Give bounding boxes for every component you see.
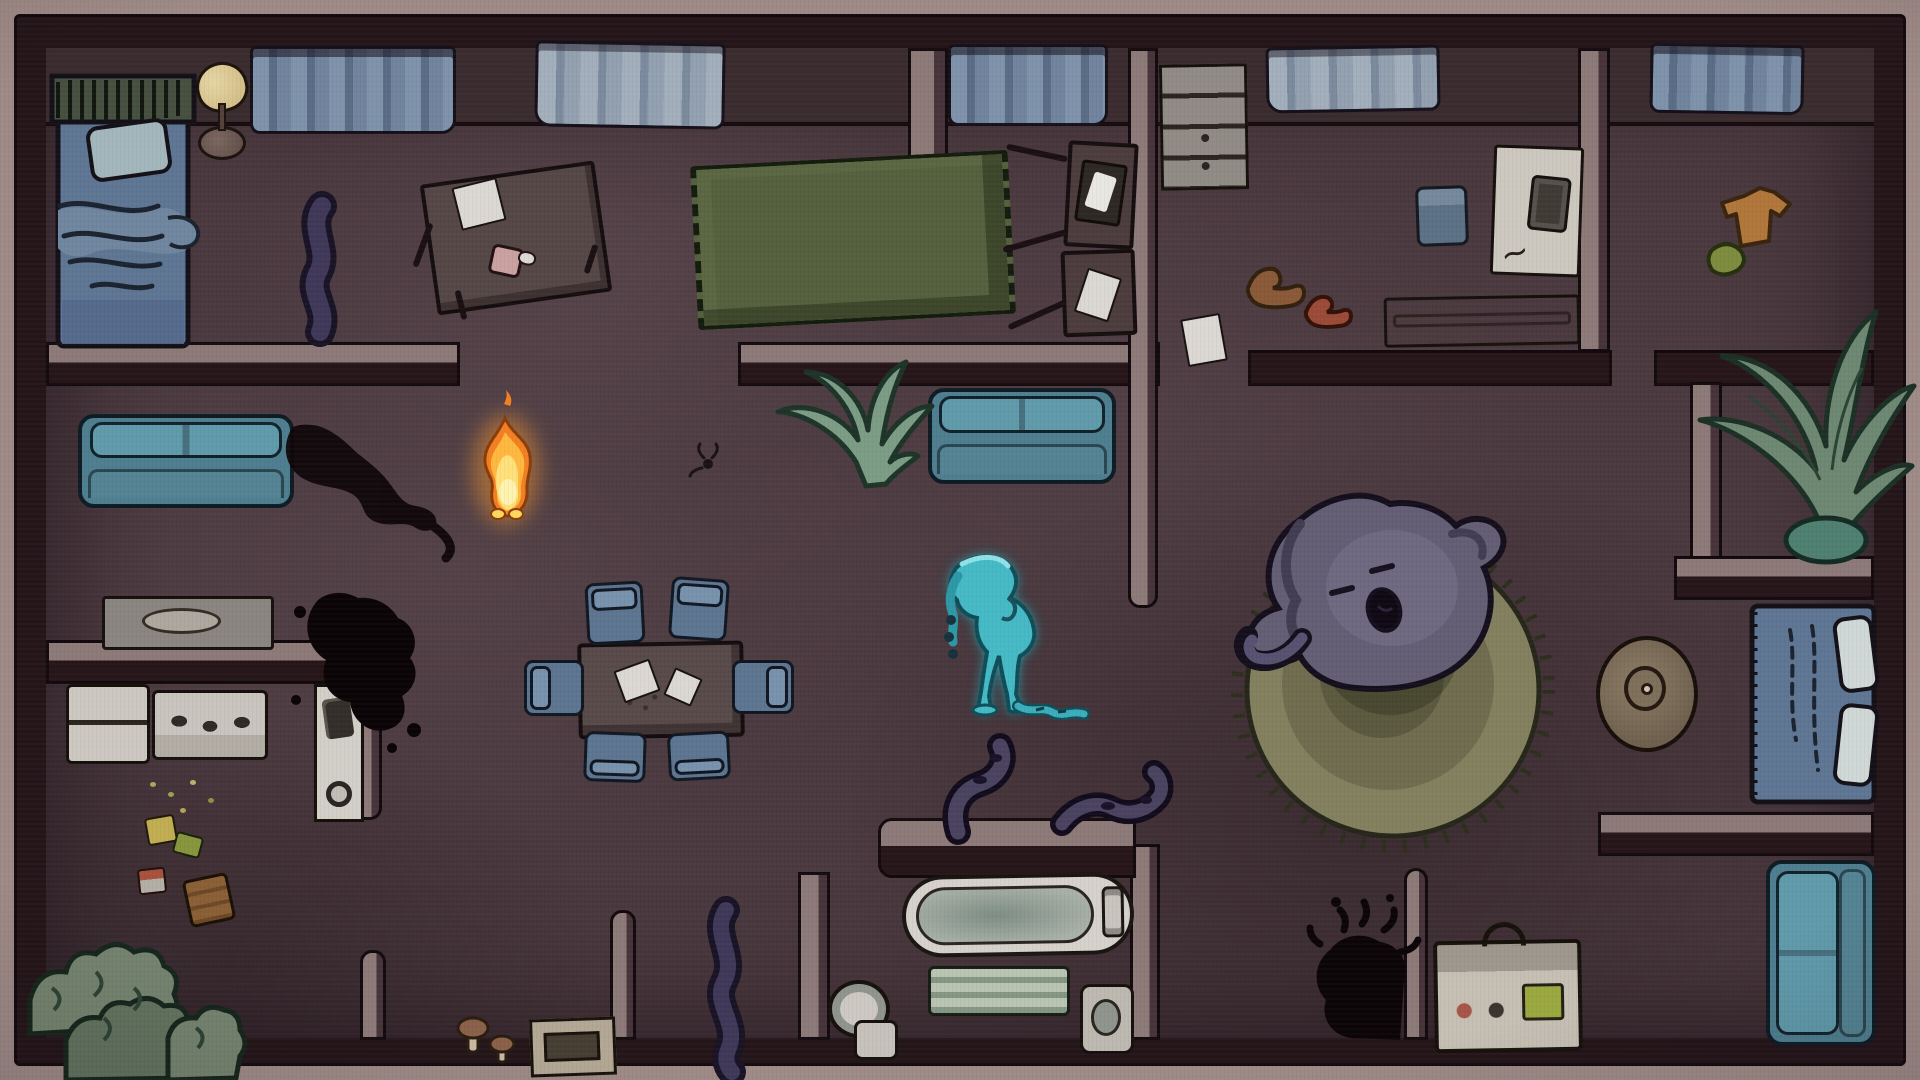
flame-spirit[interactable]: [472, 390, 540, 526]
water-ghost[interactable]: [944, 556, 1084, 715]
game-stage: [0, 0, 1920, 1080]
characters-layer: [0, 0, 1920, 1080]
